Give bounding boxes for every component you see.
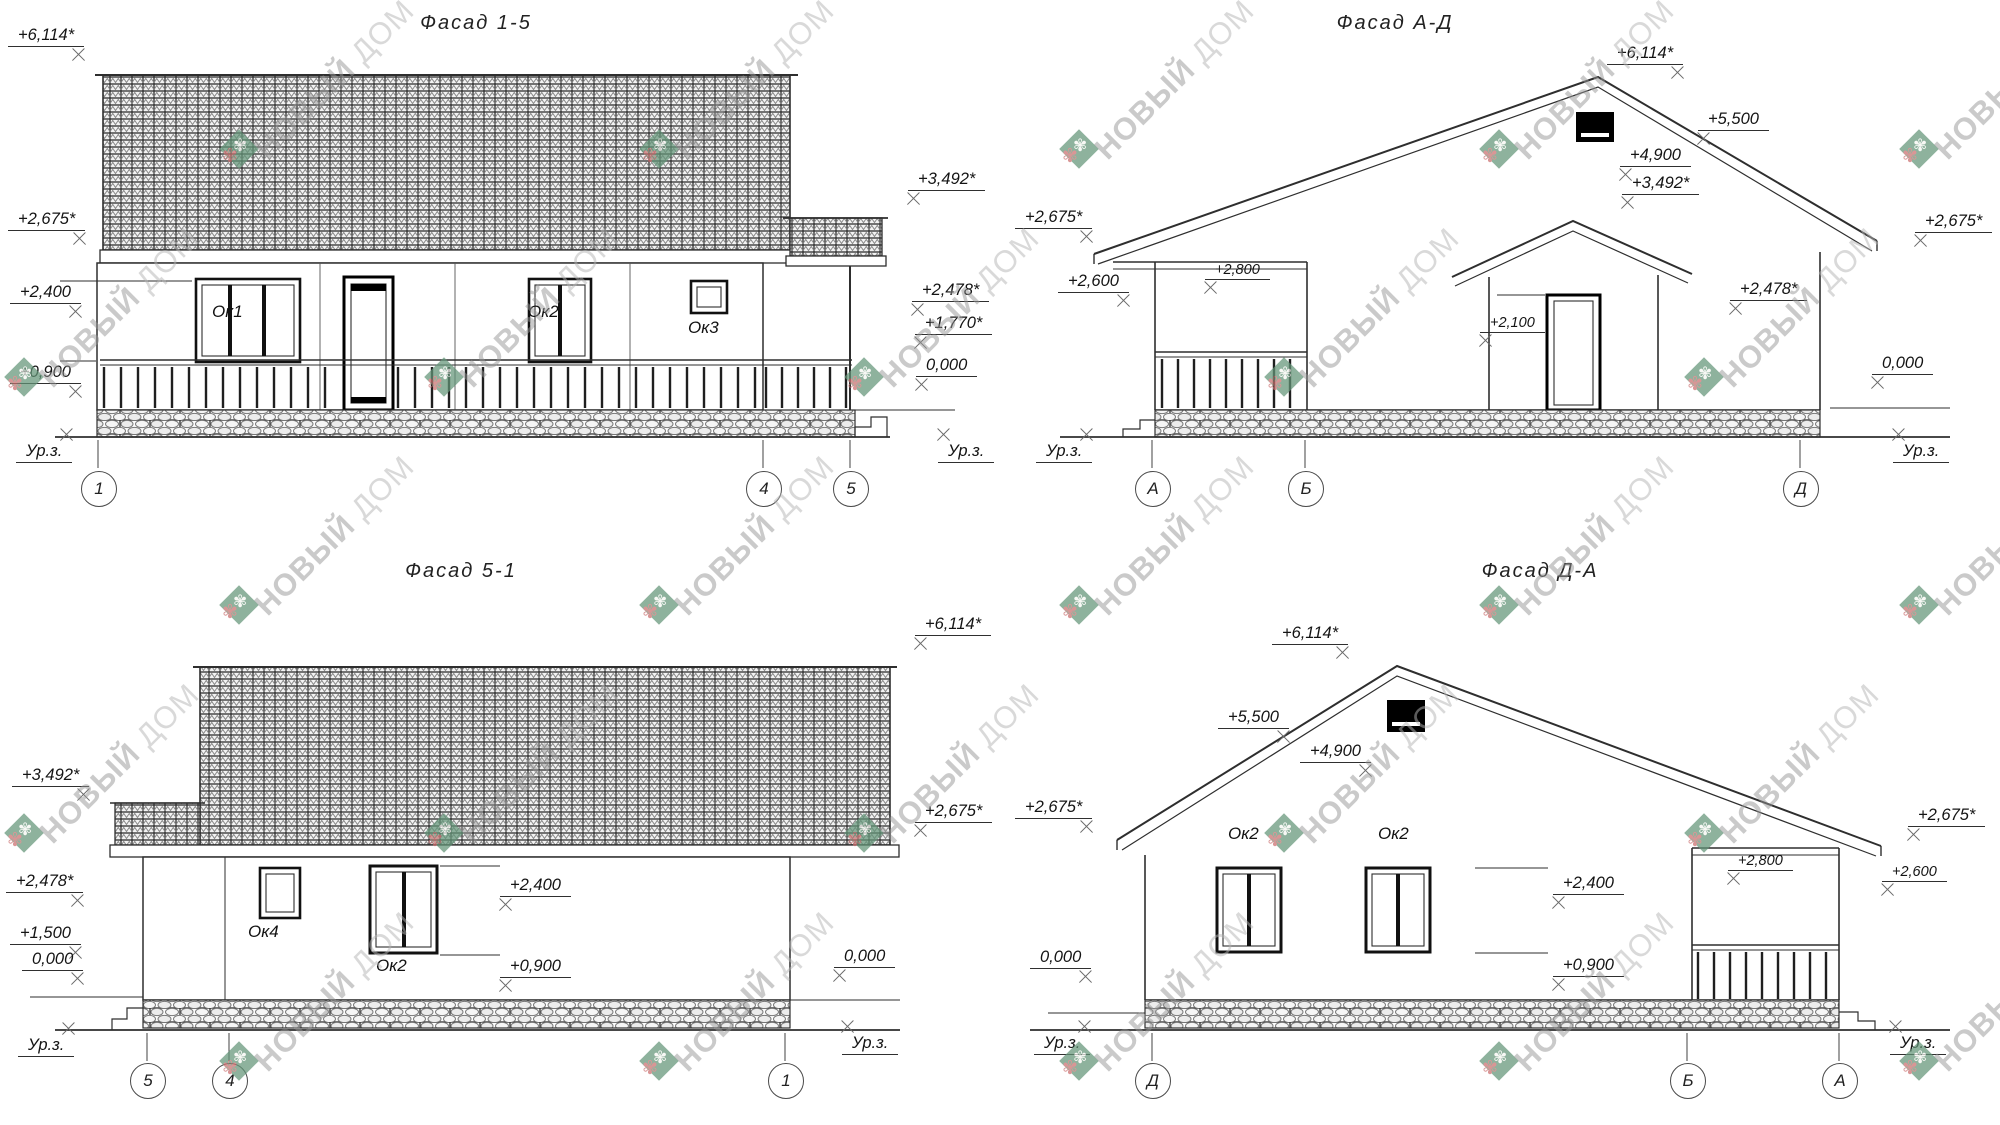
- facade-title: Фасад 1-5: [366, 12, 586, 35]
- elevation-mark: +5,500: [1218, 708, 1289, 729]
- axis-bubble: Д: [1783, 471, 1819, 507]
- facade-title: Фасад Д-А: [1430, 560, 1650, 583]
- facade-a-d-drawing: [1060, 77, 1950, 468]
- elevation-mark: 0,000: [834, 947, 895, 968]
- foundation: [97, 410, 855, 437]
- elevation-mark: +2,675*: [8, 210, 85, 231]
- elevation-mark: +2,675*: [1015, 208, 1092, 229]
- facade-d-a-drawing: [1030, 666, 1950, 1061]
- chimney: [1576, 112, 1614, 142]
- ground-level-label: Ур.з.: [1034, 1034, 1090, 1055]
- axis-bubble: 1: [81, 471, 117, 507]
- elevation-mark: +2,675*: [1908, 806, 1985, 827]
- elevation-mark: +2,600: [1882, 864, 1947, 882]
- elevation-mark: 0,000: [1872, 354, 1933, 375]
- roof-slope: [1094, 77, 1877, 254]
- elevation-mark: +2,400: [10, 283, 81, 304]
- ground-level-label: Ур.з.: [842, 1034, 898, 1055]
- elevation-mark: +2,675*: [915, 802, 992, 823]
- elevation-mark: +5,500: [1698, 110, 1769, 131]
- axis-bubble: 5: [130, 1063, 166, 1099]
- elevation-mark: 0,000: [916, 356, 977, 377]
- axis-bubble: 1: [768, 1063, 804, 1099]
- axis-bubble: 4: [212, 1063, 248, 1099]
- roof: [200, 667, 890, 845]
- entrance-door: [1547, 295, 1600, 410]
- facade-title: Фасад 5-1: [351, 560, 571, 583]
- foundation: [1145, 1000, 1839, 1028]
- elevation-mark: +6,114*: [1607, 44, 1683, 65]
- foundation: [1155, 410, 1820, 437]
- steps: [112, 1008, 143, 1030]
- roof-slope: [1117, 666, 1881, 846]
- steps: [1839, 1012, 1875, 1030]
- window-label: Ок2: [1378, 824, 1409, 844]
- elevation-mark: 0,000: [1030, 948, 1091, 969]
- elevation-mark: +2,800: [1728, 853, 1793, 871]
- facade-title: Фасад А-Д: [1285, 12, 1505, 35]
- ground-level-label: Ур.з.: [1890, 1034, 1946, 1055]
- elevation-mark: +2,478*: [912, 281, 989, 302]
- facade-5-1-drawing: [30, 667, 900, 1061]
- axis-bubble: 4: [746, 471, 782, 507]
- elevation-mark: +2,400: [1553, 874, 1624, 895]
- foundation: [143, 1000, 790, 1028]
- elevation-mark: +2,600: [1058, 272, 1129, 293]
- porch-roof: [790, 218, 882, 256]
- elevation-mark: +4,900: [1620, 146, 1691, 167]
- axis-bubble: 5: [833, 471, 869, 507]
- elevation-mark: +6,114*: [8, 26, 84, 47]
- chimney: [1387, 700, 1425, 732]
- elevation-mark: +3,492*: [1622, 174, 1699, 195]
- elevation-mark: +4,900: [1300, 742, 1371, 763]
- window-label: Ок2: [376, 956, 407, 976]
- ground-level-label: Ур.з.: [1893, 442, 1949, 463]
- elevation-mark: +3,492*: [908, 170, 985, 191]
- elevation-mark: 0,000: [22, 950, 83, 971]
- window-ok3: [691, 281, 727, 313]
- elevation-mark: +2,100: [1480, 315, 1545, 333]
- elevation-mark: +6,114*: [915, 615, 991, 636]
- elevation-mark: +2,478*: [6, 872, 83, 893]
- window-label: Ок2: [528, 302, 559, 322]
- window-label: Ок4: [248, 922, 279, 942]
- axis-bubble: А: [1822, 1063, 1858, 1099]
- axis-bubble: Б: [1288, 471, 1324, 507]
- ground-level-label: Ур.з.: [1036, 442, 1092, 463]
- ground-level-label: Ур.з.: [16, 442, 72, 463]
- ground-level-label: Ур.з.: [938, 442, 994, 463]
- elevation-mark: +2,478*: [1730, 280, 1807, 301]
- axis-bubble: Б: [1670, 1063, 1706, 1099]
- window-label: Ок1: [212, 302, 243, 322]
- elevation-mark: +2,800: [1205, 262, 1270, 280]
- elevation-mark: +3,492*: [12, 766, 89, 787]
- facade-1-5-drawing: [55, 75, 955, 468]
- window-label: Ок2: [1228, 824, 1259, 844]
- drawing-canvas: [0, 0, 2000, 1125]
- eaves-fascia: [100, 250, 797, 263]
- drawing-sheet: Фасад 1-5 +6,114* +2,675* +2,400 +0,900 …: [0, 0, 2000, 1125]
- elevation-mark: +6,114*: [1272, 624, 1348, 645]
- elevation-mark: +2,400: [500, 876, 571, 897]
- elevation-mark: +0,900: [1553, 956, 1624, 977]
- elevation-mark: +1,500: [10, 924, 81, 945]
- elevation-mark: +2,675*: [1015, 798, 1092, 819]
- axis-bubble: Д: [1135, 1063, 1171, 1099]
- ground-level-label: Ур.з.: [18, 1036, 74, 1057]
- elevation-mark: +2,675*: [1915, 212, 1992, 233]
- elevation-mark: +0,900: [10, 363, 81, 384]
- elevation-mark: +0,900: [500, 957, 571, 978]
- porch-roof: [115, 803, 200, 845]
- steps: [855, 417, 887, 437]
- wall: [143, 857, 790, 1000]
- eaves-fascia: [110, 845, 899, 857]
- window-label: Ок3: [688, 318, 719, 338]
- roof: [103, 75, 790, 250]
- elevation-mark: +1,770*: [915, 314, 992, 335]
- axis-bubble: А: [1135, 471, 1171, 507]
